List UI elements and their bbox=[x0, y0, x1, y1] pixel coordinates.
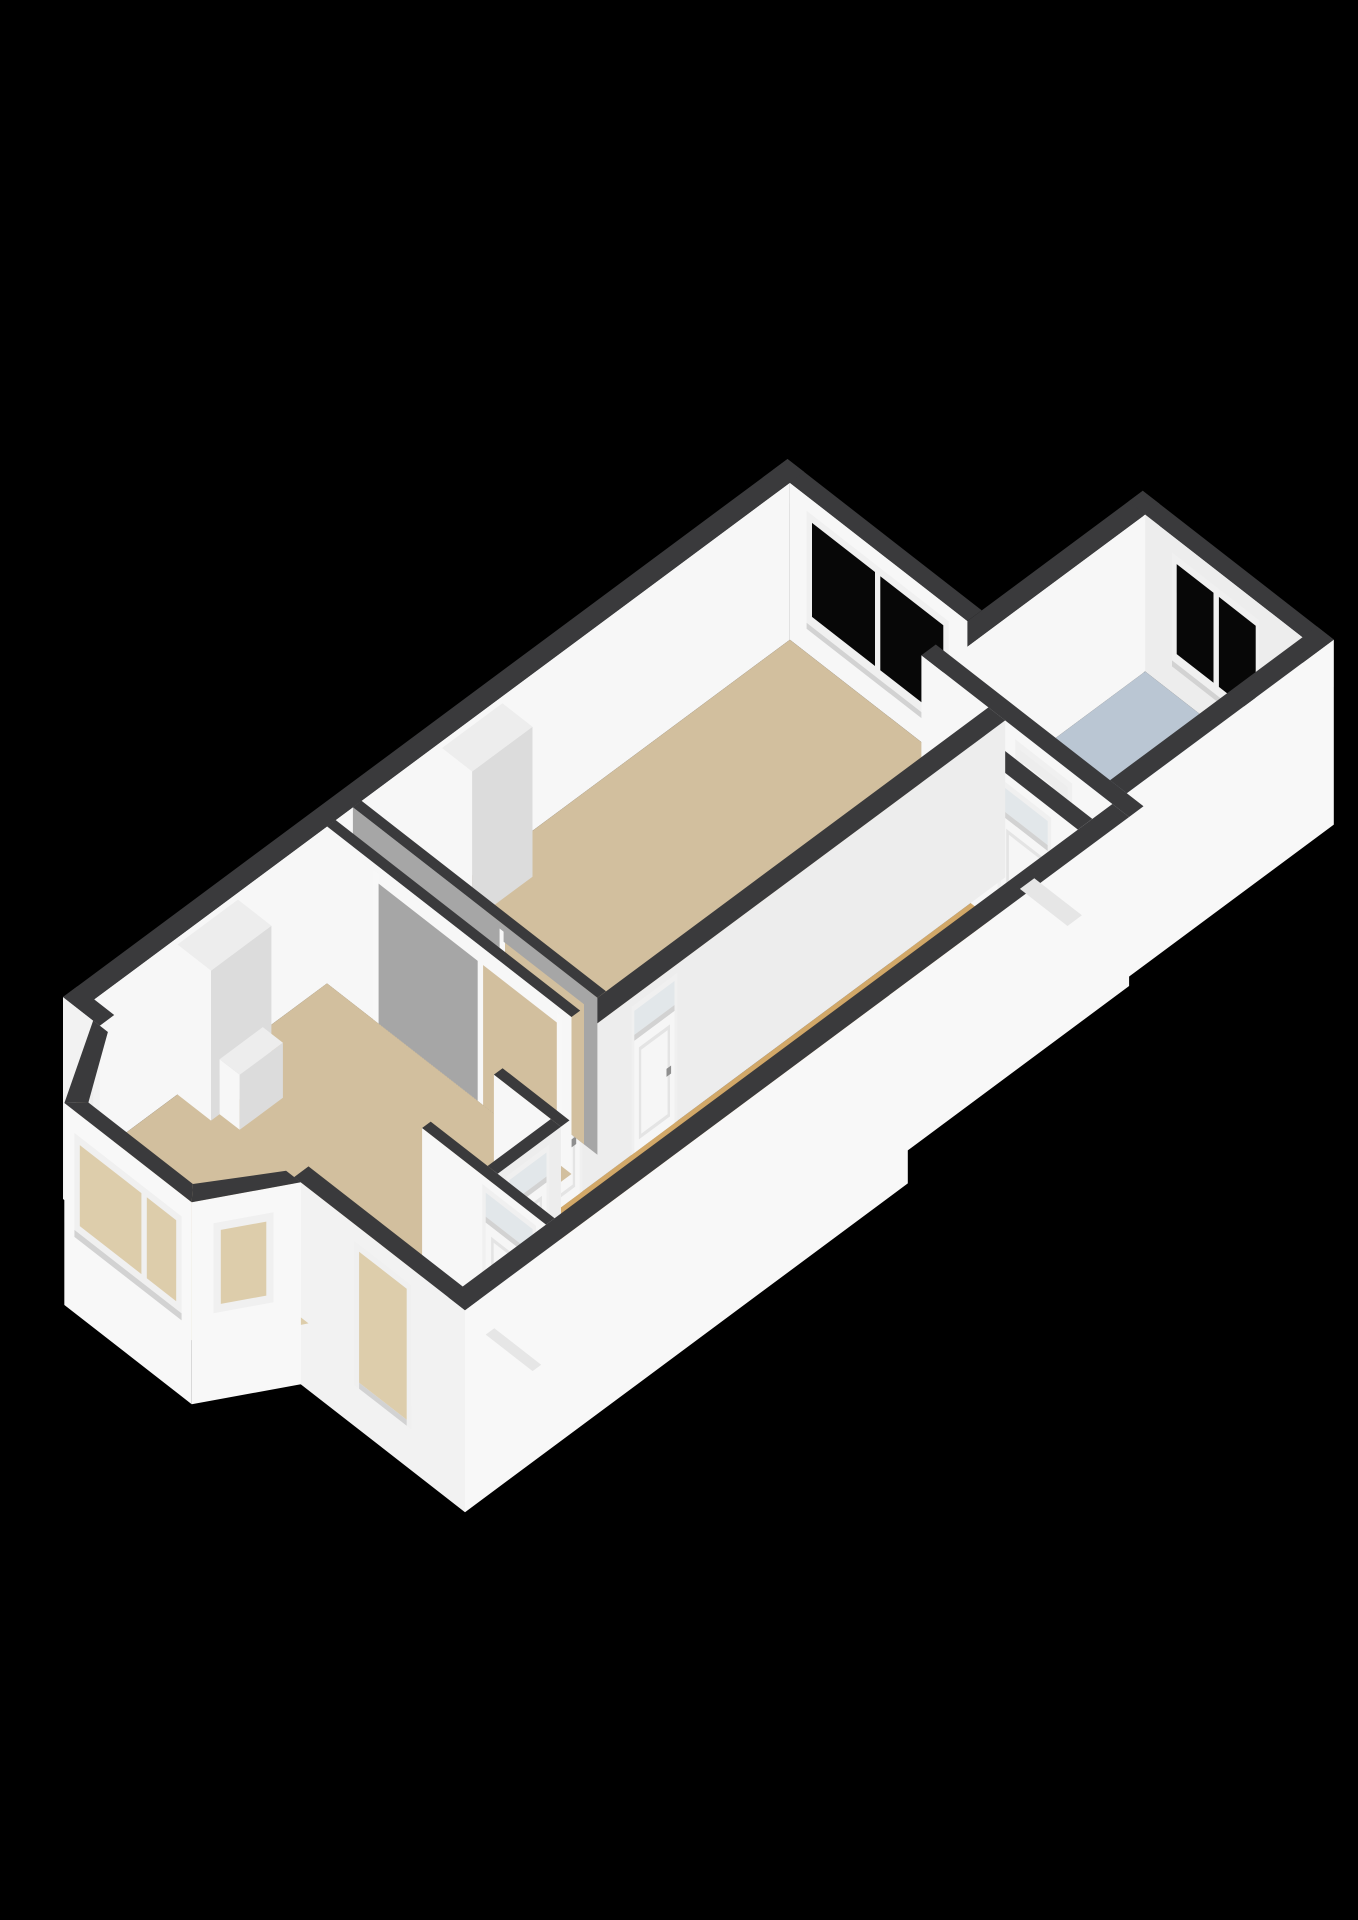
front-chimney-front bbox=[178, 945, 212, 1121]
ensuite-front-jamb-left bbox=[373, 870, 378, 1024]
floor-plan-canvas bbox=[0, 0, 1358, 1920]
floor-plan-3d-render bbox=[0, 0, 1358, 1920]
ensuite-opening-trim bbox=[478, 951, 483, 1105]
bay-right-window-glass bbox=[221, 1222, 266, 1304]
